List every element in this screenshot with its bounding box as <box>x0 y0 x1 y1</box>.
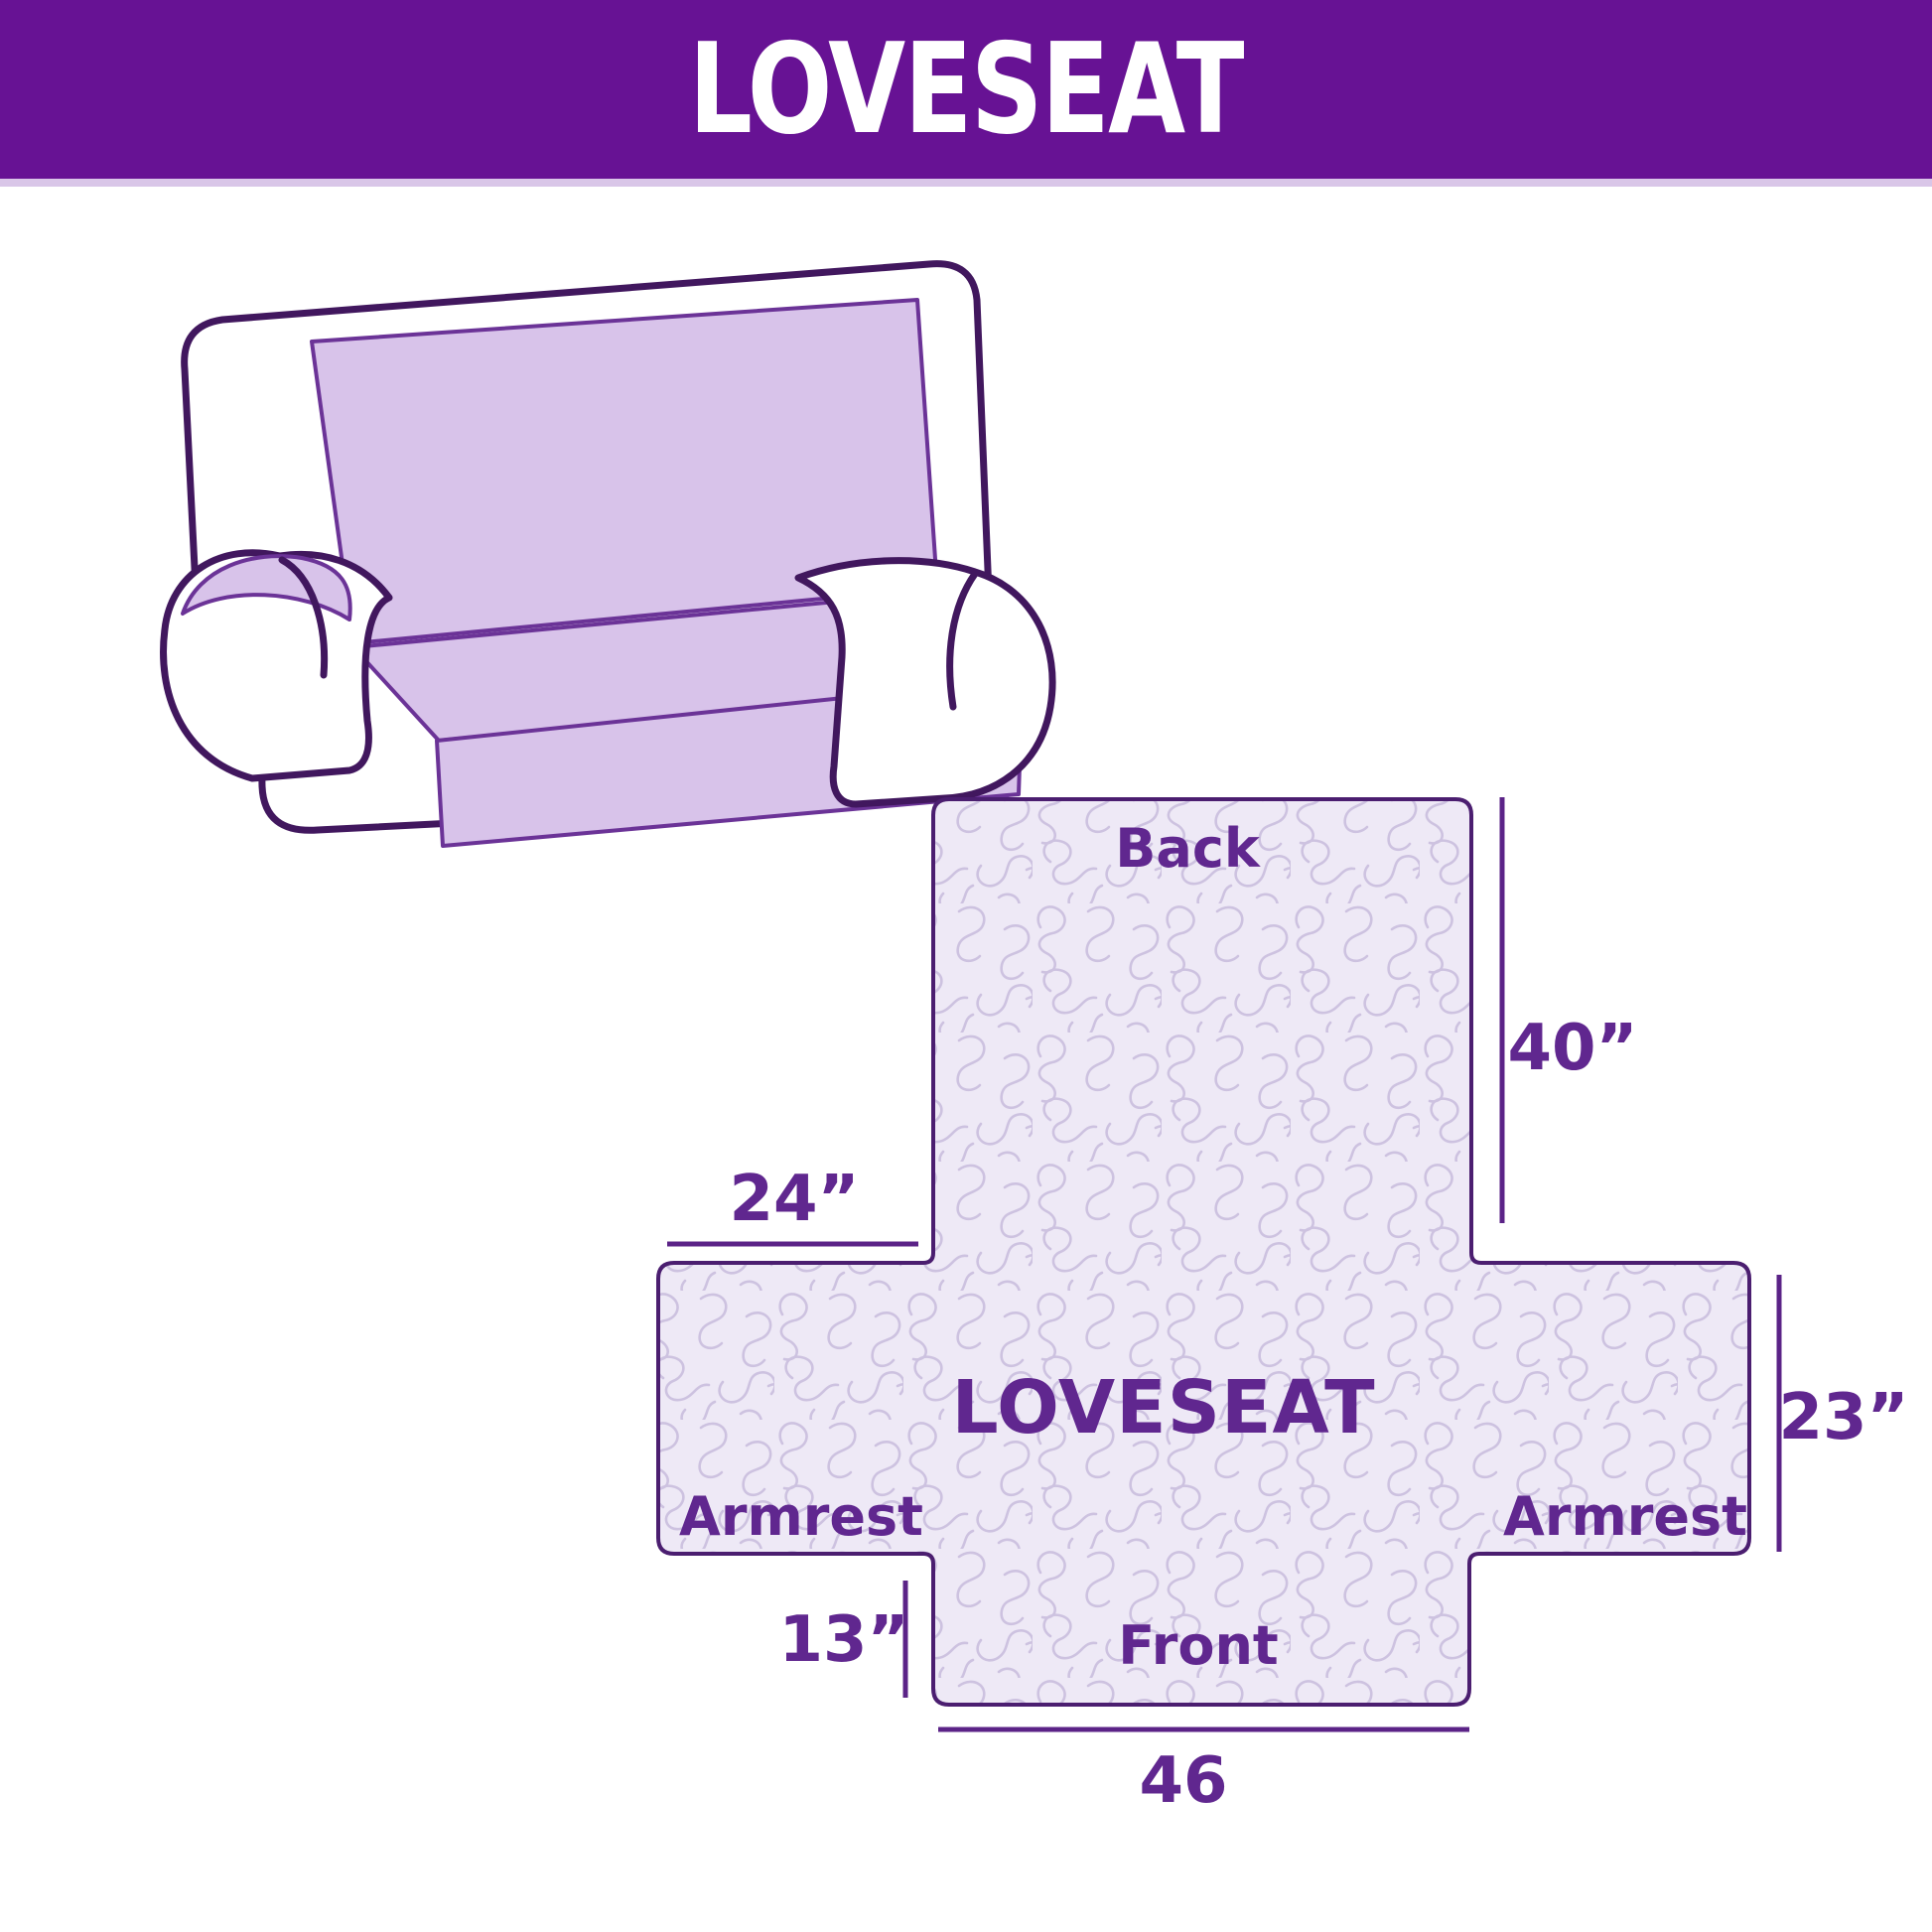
loveseat-sofa-illustration <box>164 264 1053 846</box>
loveseat-infographic-page: LOVESEAT <box>0 0 1932 1932</box>
dim-armrest-height-label: 23” <box>1778 1386 1908 1449</box>
cover-flat-diagram <box>658 797 1779 1729</box>
diagram-canvas <box>0 0 1932 1932</box>
dim-back-height-label: 40” <box>1507 1017 1637 1080</box>
dim-front-width-label: 46 <box>1139 1749 1227 1813</box>
center-product-label: LOVESEAT <box>951 1371 1375 1445</box>
armrest-right-label: Armrest <box>1503 1490 1747 1544</box>
front-section-label: Front <box>1118 1619 1278 1673</box>
dim-armrest-width-label: 24” <box>729 1168 859 1231</box>
back-section-label: Back <box>1115 822 1260 876</box>
dim-front-drop-label: 13” <box>778 1608 908 1672</box>
cover-cross-shape <box>658 799 1749 1705</box>
armrest-left-label: Armrest <box>679 1490 923 1544</box>
